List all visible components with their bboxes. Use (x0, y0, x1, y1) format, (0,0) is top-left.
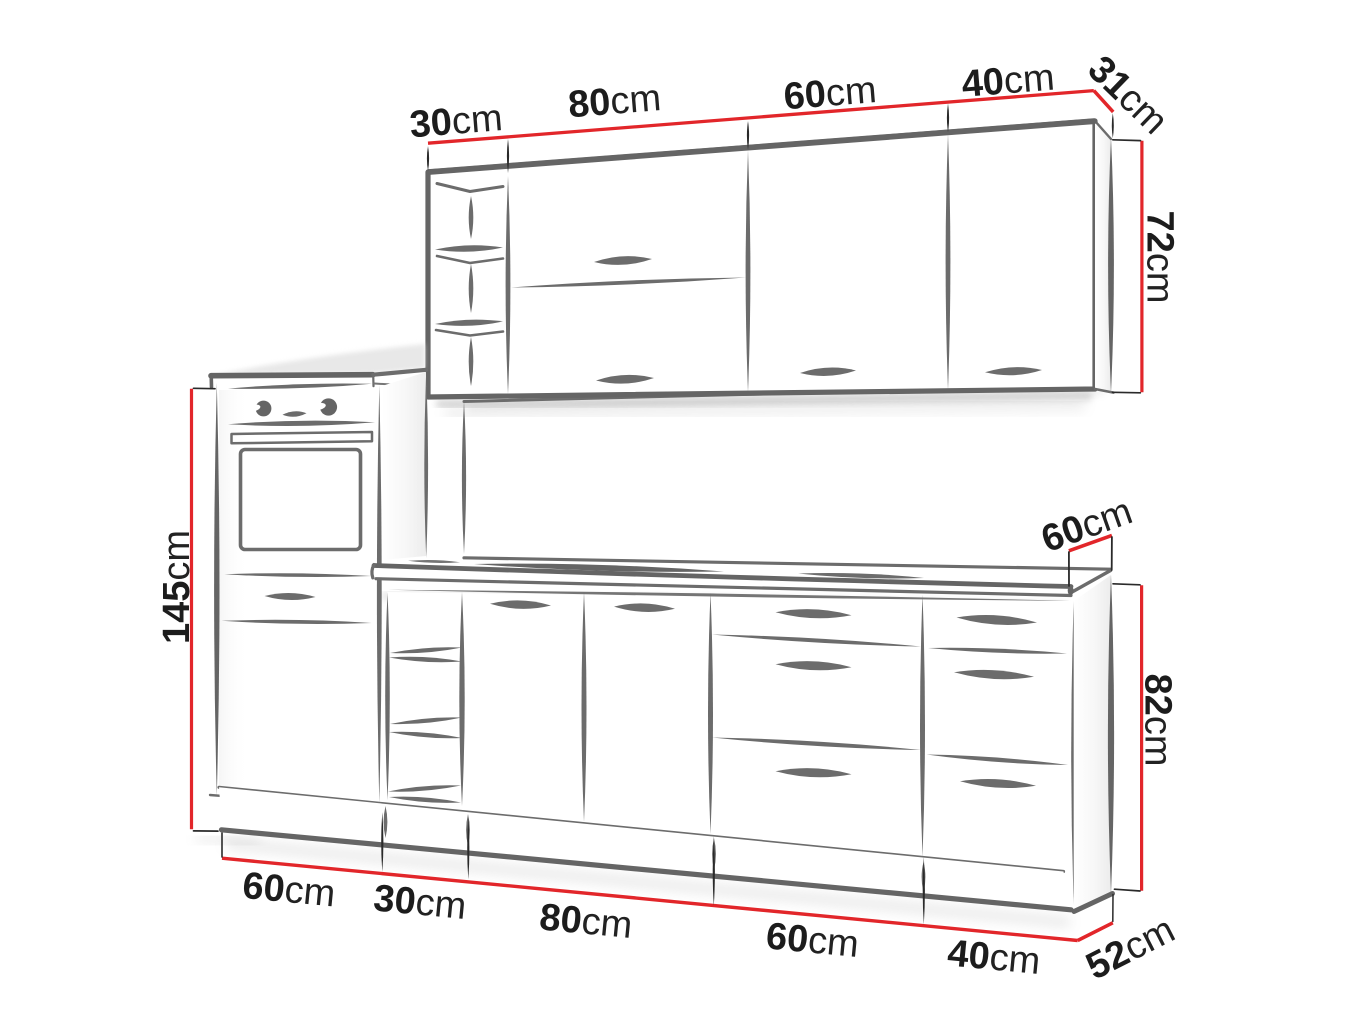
svg-text:30cm: 30cm (372, 877, 469, 928)
svg-text:30cm: 30cm (408, 97, 504, 146)
svg-text:40cm: 40cm (946, 932, 1043, 983)
svg-text:72cm: 72cm (1138, 211, 1180, 304)
svg-text:145cm: 145cm (156, 530, 198, 644)
svg-text:60cm: 60cm (782, 69, 878, 118)
svg-text:60cm: 60cm (764, 915, 861, 966)
svg-text:82cm: 82cm (1136, 674, 1178, 767)
svg-text:40cm: 40cm (960, 57, 1056, 106)
svg-text:60cm: 60cm (241, 865, 338, 916)
svg-text:80cm: 80cm (538, 896, 635, 947)
svg-text:80cm: 80cm (567, 77, 663, 126)
